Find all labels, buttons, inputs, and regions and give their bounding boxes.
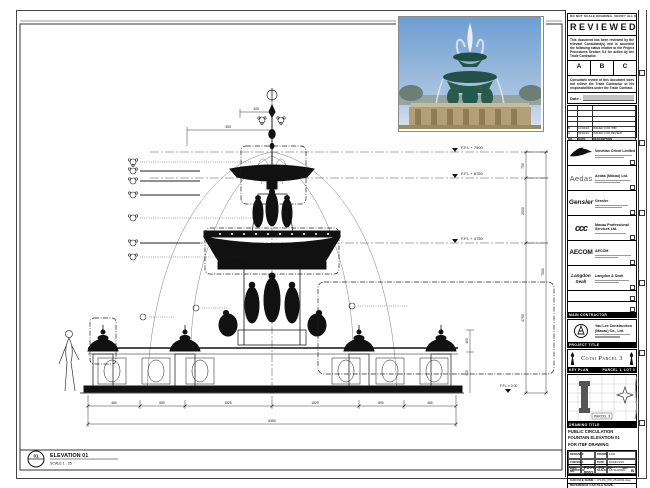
aecom-logo: AECOM — [568, 249, 594, 257]
svg-text:300: 300 — [225, 125, 231, 129]
stamp-header: DO NOT SCALE DRAWING. VERIFY ALL DIMENSI… — [568, 14, 636, 21]
contractor-header-bar: MAIN CONTRACTOR — [567, 312, 637, 318]
svg-text:460: 460 — [427, 401, 433, 405]
banner-ornament-icon — [629, 352, 634, 365]
lower-statue-group — [219, 269, 326, 345]
aedas-logo: Aedas — [568, 174, 594, 183]
status-option-c: C — [614, 61, 636, 75]
svg-text:7500: 7500 — [541, 268, 545, 276]
key-plan-site-label: PARCEL 3 — [594, 414, 610, 418]
svg-text:1825: 1825 — [311, 401, 319, 405]
project-title-banner: Cotai Parcel 3 — [567, 349, 637, 369]
contractor-row: Yau Lee Construction (Macau) Co., Ltd. — [567, 319, 637, 344]
consultant-row-langdon-seah: Langdon Seah Langdon & Seah — [567, 265, 637, 292]
langdon-seah-logo: Langdon Seah — [568, 273, 594, 284]
ccc-logo: ccc — [568, 223, 594, 234]
upper-basin — [230, 165, 314, 189]
project-title-bar: PROJECT TITLE — [567, 342, 637, 348]
consultant-row-macau-professional: ccc Macau Professional Services Ltd. — [567, 215, 637, 242]
svg-text:F.F.L ± 0.00: F.F.L ± 0.00 — [500, 384, 517, 388]
svg-text:450: 450 — [465, 338, 469, 344]
compass-star-icon — [617, 387, 633, 403]
photo-balustrade — [399, 103, 541, 129]
consultant-row-venetian: Venetian Orient Limited — [567, 140, 637, 167]
key-plan-bar: KEY PLAN PARCEL 1, LOT 3 — [567, 367, 637, 373]
svg-text:F.F.L + 6750: F.F.L + 6750 — [461, 171, 484, 176]
key-plan-site-building — [579, 381, 590, 413]
svg-text:F.F.L + 4750: F.F.L + 4750 — [461, 236, 484, 241]
level-markers: F.F.L + 7500 F.F.L + 6750 F.F.L + 4750 F… — [452, 145, 517, 393]
ref-cad-row: REFERENCE CAD FILE NAME : — [567, 484, 637, 488]
key-plan-parcel-label: PARCEL 1, LOT 3 — [603, 368, 635, 372]
drawing-title-text: PUBLIC CIRCULATION FOUNTAIN ELEVATION 01… — [568, 429, 636, 448]
svg-text:4750: 4750 — [521, 314, 525, 322]
top-dimensions: 100 300 — [187, 107, 272, 146]
key-plan-label: KEY PLAN — [569, 368, 588, 372]
designed-value — [581, 451, 595, 459]
consultant-row-aecom: AECOM AECOM — [567, 240, 637, 267]
svg-text:890: 890 — [159, 401, 165, 405]
svg-text:6350: 6350 — [268, 419, 276, 423]
stamp-date-row: Date : — [568, 92, 636, 103]
vertical-dimensions: 750 2000 4750 7500 — [521, 151, 548, 395]
stamp-title: REVIEWED — [568, 21, 636, 36]
svg-text:100: 100 — [253, 107, 259, 111]
drawing-title-line: FOR ITBF DRAWING — [568, 442, 636, 448]
top-finial — [269, 105, 275, 168]
rev-label: REV : — [623, 467, 630, 473]
edge-marker-strip — [639, 10, 646, 477]
designed-label: DESIGNED — [568, 451, 581, 459]
elevation-title: 01 ELEVATION 01 SCALE 1 : 25 — [28, 451, 118, 467]
ref-cad-label: REFERENCE CAD FILE NAME : — [570, 484, 615, 488]
status-option-b: B — [591, 61, 614, 75]
svg-text:890: 890 — [378, 401, 384, 405]
project-title: Cotai Parcel 3 — [575, 355, 629, 363]
date-signature-area — [583, 95, 634, 101]
stamp-body-1: This document has been reviewed by the r… — [568, 36, 636, 60]
title-block: DO NOT SCALE DRAWING. VERIFY ALL DIMENSI… — [565, 10, 646, 477]
upper-statue-group — [252, 189, 293, 232]
middle-basin — [204, 231, 340, 269]
svg-text:2000: 2000 — [521, 207, 525, 215]
reference-photo — [398, 16, 544, 132]
venetian-lion-logo-icon — [568, 147, 594, 160]
review-stamp: DO NOT SCALE DRAWING. VERIFY ALL DIMENSI… — [567, 13, 637, 104]
stamp-body-2: Consultant review of this document does … — [568, 76, 636, 92]
fountain-silhouette — [80, 105, 464, 393]
drawing-title-bar: DRAWING TITLE — [567, 422, 637, 428]
drawn-label: DRAWN — [595, 451, 607, 459]
consultant-row-gensler: Gensler Gensler — [567, 190, 637, 217]
status-option-a: A — [568, 61, 591, 75]
base-vertical-dimension: 450 900 — [465, 330, 474, 393]
revision-table: B 12/04/16 ISSUED FOR ITBF A 05/02/16 IS… — [567, 105, 637, 138]
svg-text:1825: 1825 — [224, 401, 232, 405]
elevation-scale: SCALE 1 : 25 — [50, 462, 72, 466]
yau-lee-crest-icon — [568, 323, 594, 340]
rev-value: B — [631, 468, 634, 473]
key-plan-map: PARCEL 3 — [567, 374, 637, 422]
gensler-logo: Gensler — [568, 199, 594, 207]
svg-text:900: 900 — [465, 370, 469, 376]
drawing-sheet: F.F.L + 7500 F.F.L + 6750 F.F.L + 4750 F… — [0, 0, 650, 488]
drawn-value: CAD — [607, 451, 636, 459]
date-label: Date : — [570, 96, 581, 101]
elevation-tag: 01 — [33, 454, 39, 459]
stamp-status-options: A B C — [568, 60, 636, 76]
level-lines — [150, 152, 548, 243]
consultant-row-aedas: Aedas Aedas (Macau) Ltd. — [567, 165, 637, 192]
svg-text:F.F.L + 7500: F.F.L + 7500 — [461, 145, 484, 150]
svg-text:460: 460 — [111, 401, 117, 405]
svg-text:750: 750 — [521, 163, 525, 169]
elevation-label: ELEVATION 01 — [50, 453, 88, 459]
scale-figure — [59, 331, 79, 392]
